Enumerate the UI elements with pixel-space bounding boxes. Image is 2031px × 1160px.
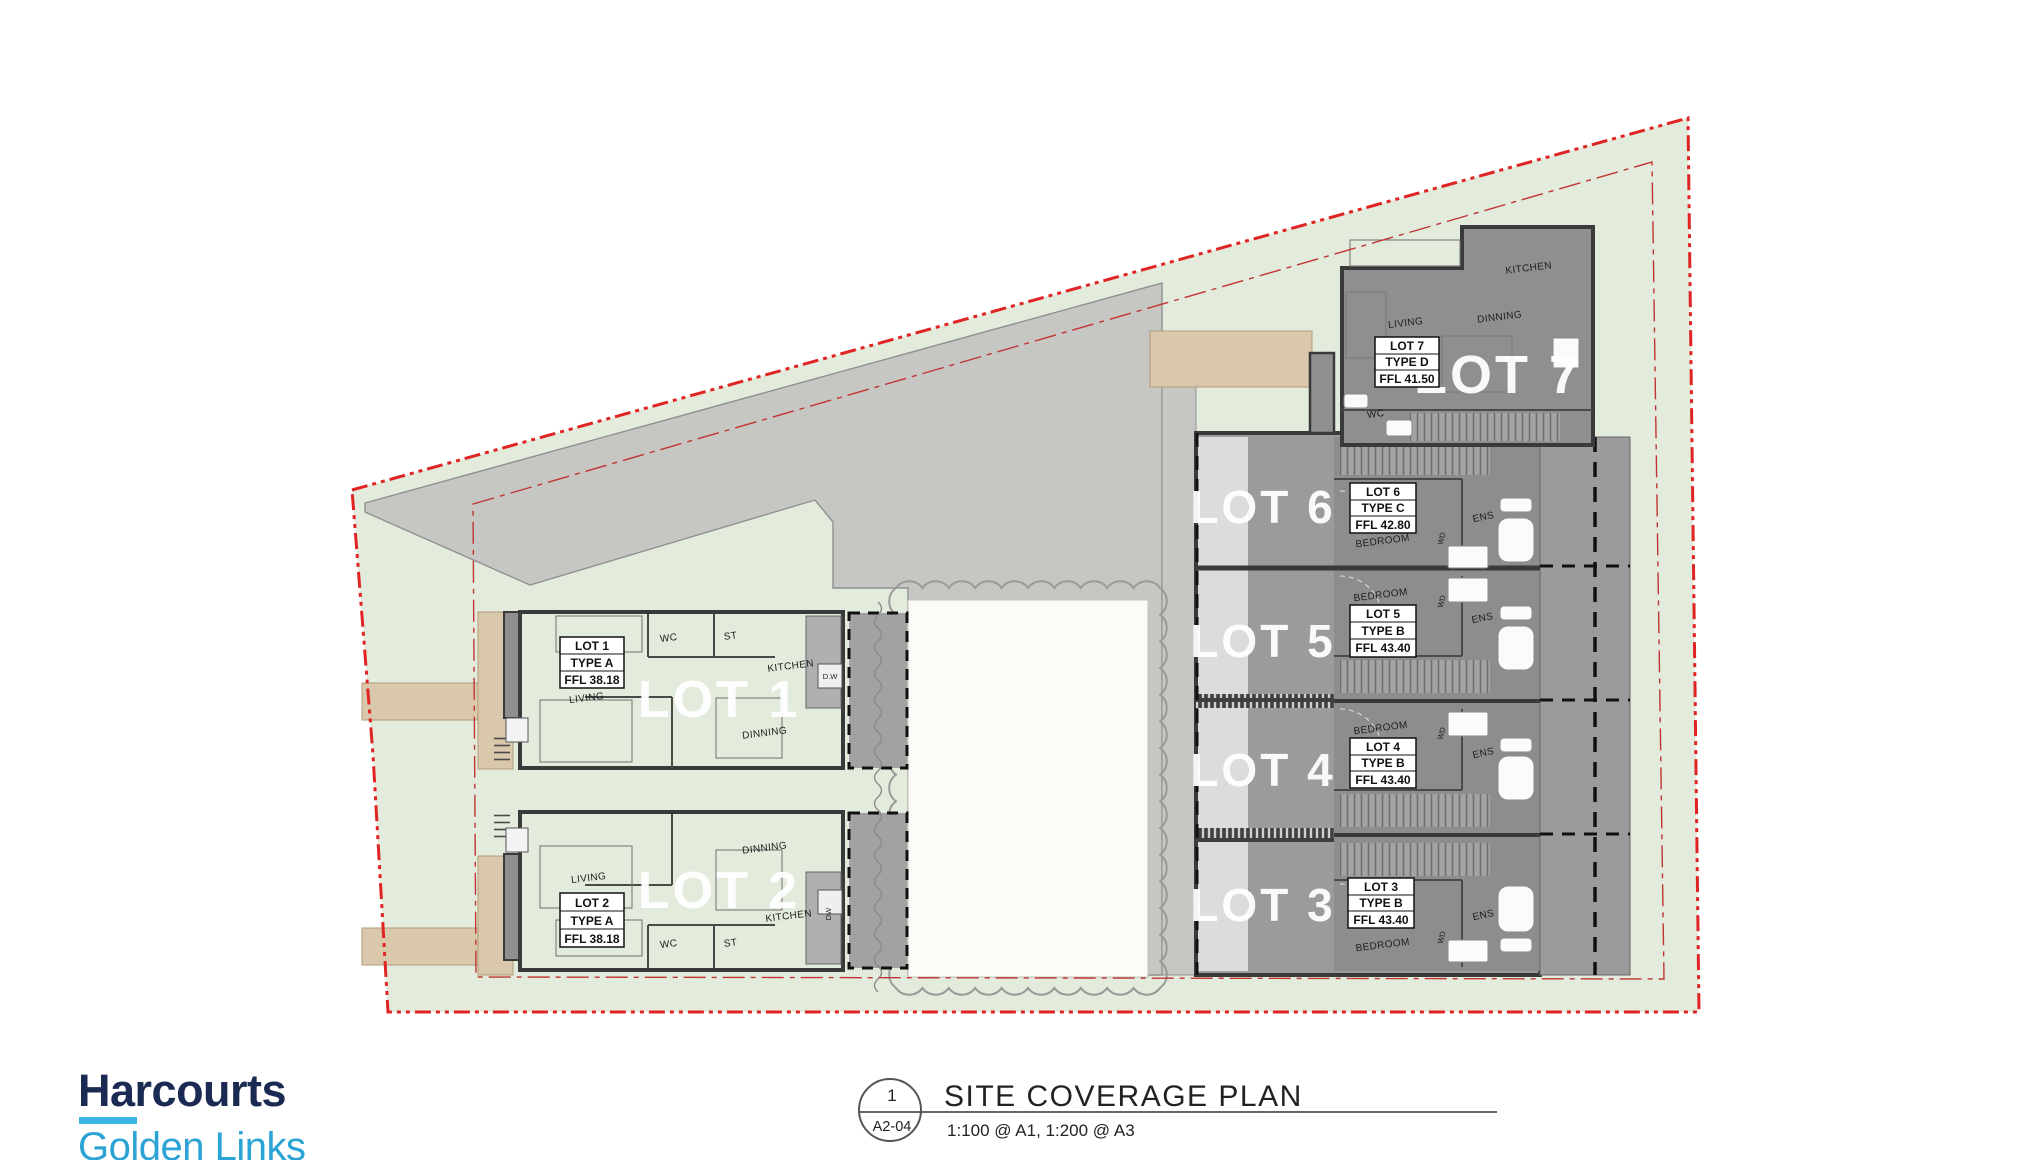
svg-text:FFL 38.18: FFL 38.18 <box>564 673 619 687</box>
lot6-big-label: LOT 6 <box>1190 481 1335 533</box>
svg-text:FFL 43.40: FFL 43.40 <box>1355 641 1410 655</box>
lot7-info-box: LOT 7 TYPE D FFL 41.50 <box>1375 337 1439 387</box>
lot5-big-label: LOT 5 <box>1190 615 1335 667</box>
svg-text:DW: DW <box>824 907 833 920</box>
svg-text:LOT 7: LOT 7 <box>1390 339 1424 353</box>
svg-text:WC: WC <box>659 632 678 645</box>
svg-text:LOT 1: LOT 1 <box>575 639 609 653</box>
svg-text:ST: ST <box>723 937 738 950</box>
svg-text:LOT 5: LOT 5 <box>1366 607 1400 621</box>
svg-text:FFL 43.40: FFL 43.40 <box>1355 773 1410 787</box>
lot1-porch <box>504 612 520 718</box>
courtyard <box>889 581 1167 994</box>
harcourts-logo: Harcourts Golden Links <box>78 1068 305 1160</box>
svg-text:D.W: D.W <box>823 672 839 681</box>
lot3-big-label: LOT 3 <box>1190 879 1335 931</box>
lot4-big-label: LOT 4 <box>1190 744 1335 796</box>
svg-text:TYPE B: TYPE B <box>1361 756 1405 770</box>
brand-name: Harcourts <box>78 1068 305 1113</box>
svg-text:FFL 41.50: FFL 41.50 <box>1379 372 1434 386</box>
svg-text:FFL 42.80: FFL 42.80 <box>1355 518 1410 532</box>
sheet-number: A2-04 <box>858 1119 926 1135</box>
site-coverage-plan-page: LOT 1 LOT 1 TYPE A FFL 38.18 WC ST KITCH… <box>0 0 2031 1160</box>
lot2-info-box: LOT 2 TYPE A FFL 38.18 <box>560 893 624 947</box>
detail-number: 1 <box>858 1086 926 1106</box>
lot6-info-box: LOT 6 TYPE C FFL 42.80 <box>1350 483 1416 533</box>
lot1-big-label: LOT 1 <box>638 671 800 729</box>
lot7-porch <box>1310 353 1334 433</box>
rear-deck-strip <box>1540 437 1630 975</box>
lot2-entry-door <box>506 828 528 852</box>
svg-text:LOT 6: LOT 6 <box>1366 485 1400 499</box>
drawing-title: SITE COVERAGE PLAN <box>944 1080 1303 1114</box>
svg-text:WC: WC <box>659 938 678 951</box>
lot5-info-box: LOT 5 TYPE B FFL 43.40 <box>1350 605 1416 657</box>
svg-text:TYPE C: TYPE C <box>1361 501 1405 515</box>
svg-text:LOT 3: LOT 3 <box>1364 880 1398 894</box>
lot2-porch <box>504 854 520 960</box>
svg-text:ST: ST <box>723 630 738 643</box>
svg-text:FFL 38.18: FFL 38.18 <box>564 932 619 946</box>
lot1-info-box: LOT 1 TYPE A FFL 38.18 <box>560 637 624 688</box>
lot1-entry-door <box>506 718 528 742</box>
svg-text:TYPE B: TYPE B <box>1359 896 1403 910</box>
svg-text:FFL 43.40: FFL 43.40 <box>1353 913 1408 927</box>
site-plan-canvas: LOT 1 LOT 1 TYPE A FFL 38.18 WC ST KITCH… <box>0 0 2031 1160</box>
office-name: Golden Links <box>78 1127 305 1160</box>
drawing-scale: 1:100 @ A1, 1:200 @ A3 <box>947 1121 1135 1141</box>
lot3-info-box: LOT 3 TYPE B FFL 43.40 <box>1348 878 1414 928</box>
svg-text:TYPE A: TYPE A <box>571 656 614 670</box>
svg-text:LOT 2: LOT 2 <box>575 896 609 910</box>
svg-text:TYPE B: TYPE B <box>1361 624 1405 638</box>
logo-underline <box>79 1117 137 1124</box>
svg-text:TYPE D: TYPE D <box>1385 355 1429 369</box>
svg-text:WC: WC <box>1366 408 1385 421</box>
lot2-big-label: LOT 2 <box>638 862 800 920</box>
svg-text:LOT 4: LOT 4 <box>1366 740 1400 754</box>
lot4-info-box: LOT 4 TYPE B FFL 43.40 <box>1350 738 1416 788</box>
svg-text:TYPE A: TYPE A <box>571 914 614 928</box>
